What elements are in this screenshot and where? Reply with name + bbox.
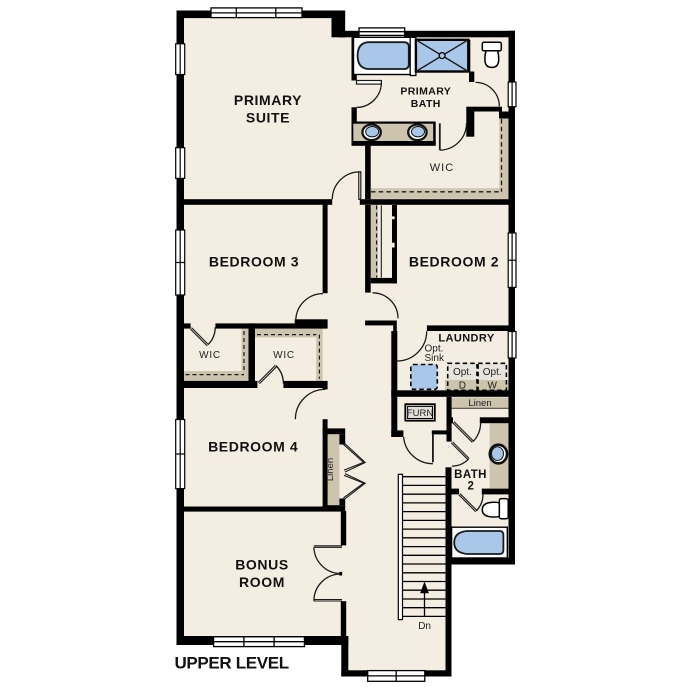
svg-text:PRIMARY: PRIMARY [400,86,451,98]
svg-text:W: W [487,380,497,391]
svg-text:2: 2 [468,481,475,493]
svg-text:Opt.: Opt. [453,367,472,378]
svg-text:BEDROOM 4: BEDROOM 4 [208,438,298,454]
svg-text:BATH: BATH [454,469,487,481]
svg-text:UPPER LEVEL: UPPER LEVEL [175,653,289,672]
svg-text:LAUNDRY: LAUNDRY [438,333,494,345]
svg-text:Dn: Dn [418,621,431,632]
svg-text:Opt.: Opt. [483,367,502,378]
svg-text:WIC: WIC [273,350,295,361]
svg-text:BATH: BATH [411,98,441,110]
svg-text:FURN: FURN [407,408,434,419]
svg-text:D: D [459,380,466,391]
svg-text:WIC: WIC [430,162,454,174]
svg-text:SUITE: SUITE [246,109,290,125]
svg-text:Linen: Linen [468,398,491,409]
svg-text:Linen: Linen [325,458,336,481]
svg-text:BONUS: BONUS [235,556,289,572]
svg-text:Sink: Sink [425,353,445,364]
svg-text:PRIMARY: PRIMARY [234,92,302,108]
svg-text:ROOM: ROOM [239,574,285,590]
svg-text:BEDROOM 2: BEDROOM 2 [409,253,499,269]
svg-text:WIC: WIC [199,350,221,361]
svg-text:BEDROOM 3: BEDROOM 3 [209,253,299,269]
